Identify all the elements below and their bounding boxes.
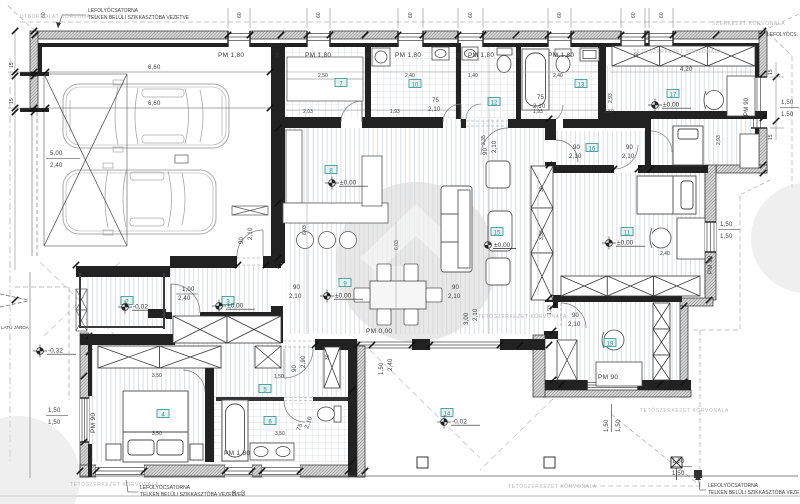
svg-text:LEFOLYÓCSATORNA: LEFOLYÓCSATORNA xyxy=(140,484,191,491)
svg-text:15: 15 xyxy=(768,69,774,75)
svg-text:12: 12 xyxy=(491,101,498,107)
svg-text:-0,32: -0,32 xyxy=(48,348,63,355)
svg-text:±0,00: ±0,00 xyxy=(340,180,357,187)
svg-text:16: 16 xyxy=(589,147,596,153)
svg-text:2,10: 2,10 xyxy=(248,227,254,240)
svg-text:90: 90 xyxy=(232,490,238,496)
svg-text:PM 90: PM 90 xyxy=(598,374,618,381)
svg-text:5,00: 5,00 xyxy=(50,151,63,157)
svg-text:17: 17 xyxy=(670,93,677,99)
svg-text:90: 90 xyxy=(573,145,581,151)
svg-text:60: 60 xyxy=(468,12,474,18)
svg-text:2,40: 2,40 xyxy=(660,251,670,257)
svg-text:90: 90 xyxy=(293,285,301,291)
svg-text:90: 90 xyxy=(626,145,634,151)
svg-text:2,10: 2,10 xyxy=(492,140,498,153)
svg-text:30: 30 xyxy=(325,354,331,360)
svg-text:PM 1,80: PM 1,80 xyxy=(548,52,574,59)
svg-text:2,10: 2,10 xyxy=(289,294,302,300)
svg-text:13: 13 xyxy=(578,83,585,89)
svg-text:2,40: 2,40 xyxy=(388,358,394,371)
svg-text:90: 90 xyxy=(452,285,460,291)
svg-text:1,50: 1,50 xyxy=(48,408,61,414)
svg-text:3,50: 3,50 xyxy=(604,109,614,115)
svg-text:6,03: 6,03 xyxy=(394,240,400,250)
svg-text:-0,02: -0,02 xyxy=(133,304,148,311)
svg-text:TETŐSZERKEZET KÖRVONALA: TETŐSZERKEZET KÖRVONALA xyxy=(478,313,567,320)
svg-text:1,00: 1,00 xyxy=(182,287,195,293)
svg-text:90: 90 xyxy=(239,236,245,244)
svg-text:TELKEN BELÜLI SZIKKASZTÓBA VEZ: TELKEN BELÜLI SZIKKASZTÓBA VEZETVE xyxy=(708,489,800,496)
svg-text:PM 90: PM 90 xyxy=(744,97,750,116)
svg-text:1,50: 1,50 xyxy=(720,222,733,228)
svg-text:PM 1,80: PM 1,80 xyxy=(468,52,494,59)
svg-text:±0,00: ±0,00 xyxy=(617,240,634,247)
svg-text:2,10: 2,10 xyxy=(569,154,582,160)
svg-text:1,50: 1,50 xyxy=(274,374,284,380)
svg-text:PM 1,80: PM 1,80 xyxy=(218,52,244,59)
svg-text:±0,00: ±0,00 xyxy=(227,303,244,310)
svg-text:1,40: 1,40 xyxy=(468,73,478,79)
svg-text:3,58: 3,58 xyxy=(539,230,545,240)
svg-text:2,40: 2,40 xyxy=(178,296,191,302)
svg-text:±0,00: ±0,00 xyxy=(494,242,511,249)
svg-text:14: 14 xyxy=(444,412,451,418)
svg-text:2,93: 2,93 xyxy=(608,93,614,103)
svg-text:SZERKEZET KÖRVONALA: SZERKEZET KÖRVONALA xyxy=(712,20,785,27)
svg-text:TETŐSZERKEZET KÖRVONALA: TETŐSZERKEZET KÖRVONALA xyxy=(508,483,597,490)
svg-text:2,40: 2,40 xyxy=(553,73,563,79)
svg-text:60: 60 xyxy=(631,12,637,18)
svg-text:6,60: 6,60 xyxy=(148,65,161,71)
svg-text:30: 30 xyxy=(539,186,545,192)
svg-text:LEFOLYÓCS.: LEFOLYÓCS. xyxy=(767,31,798,38)
svg-text:3,50: 3,50 xyxy=(152,373,162,379)
svg-text:TELKEN BELÜLI SZIKKASZTÓBA VEZ: TELKEN BELÜLI SZIKKASZTÓBA VEZETVE xyxy=(88,14,190,21)
svg-text:90: 90 xyxy=(292,364,298,372)
svg-text:75: 75 xyxy=(432,98,440,104)
svg-text:TETŐSZERKEZET KÖRVONALA: TETŐSZERKEZET KÖRVONALA xyxy=(633,48,722,55)
svg-text:2,10: 2,10 xyxy=(568,322,581,328)
svg-text:1,50: 1,50 xyxy=(672,471,685,477)
svg-text:10: 10 xyxy=(412,83,419,89)
svg-text:60: 60 xyxy=(316,12,322,18)
svg-text:1,50: 1,50 xyxy=(379,362,385,375)
svg-text:PM 1,80: PM 1,80 xyxy=(395,52,421,59)
svg-text:30: 30 xyxy=(365,52,371,58)
svg-text:2,50: 2,50 xyxy=(318,73,328,79)
svg-text:2,40: 2,40 xyxy=(405,73,415,79)
svg-text:1,50: 1,50 xyxy=(616,419,622,432)
svg-text:11: 11 xyxy=(624,231,631,237)
svg-text:PM 1,80: PM 1,80 xyxy=(305,52,331,59)
svg-text:75: 75 xyxy=(537,95,545,101)
svg-text:60: 60 xyxy=(237,12,243,18)
svg-text:PM 90: PM 90 xyxy=(90,413,97,433)
svg-text:2,40: 2,40 xyxy=(50,163,63,169)
svg-text:LEFOLYÓCSATORNA: LEFOLYÓCSATORNA xyxy=(708,482,759,489)
svg-text:1,50: 1,50 xyxy=(781,100,794,106)
svg-text:30: 30 xyxy=(634,52,640,58)
svg-text:15: 15 xyxy=(768,134,774,140)
svg-text:PM 1,80: PM 1,80 xyxy=(224,450,250,457)
svg-text:3,50: 3,50 xyxy=(275,431,285,437)
svg-text:1,93: 1,93 xyxy=(547,305,553,315)
svg-text:1,50: 1,50 xyxy=(604,419,610,432)
svg-text:90: 90 xyxy=(572,313,580,319)
svg-text:1,50: 1,50 xyxy=(720,234,733,240)
svg-text:15: 15 xyxy=(494,231,501,237)
svg-text:15: 15 xyxy=(9,98,15,104)
svg-text:-0,02: -0,02 xyxy=(452,419,467,426)
svg-text:2,10: 2,10 xyxy=(448,294,461,300)
svg-text:1,50: 1,50 xyxy=(672,459,685,465)
svg-text:TETŐSZERKEZET KÖRVONALA: TETŐSZERKEZET KÖRVONALA xyxy=(640,407,729,414)
svg-text:60: 60 xyxy=(557,12,563,18)
svg-text:2,10: 2,10 xyxy=(622,154,635,160)
svg-text:1,50: 1,50 xyxy=(781,112,794,118)
svg-text:3,00: 3,00 xyxy=(464,312,470,325)
svg-text:TELKEN BELÜLI SZIKKASZTÓBA VEZ: TELKEN BELÜLI SZIKKASZTÓBA VEZETVE xyxy=(140,491,242,498)
svg-text:2,93: 2,93 xyxy=(716,135,722,145)
svg-text:19: 19 xyxy=(607,342,614,348)
svg-text:±0,00: ±0,00 xyxy=(335,293,352,300)
svg-text:PM 0,00: PM 0,00 xyxy=(366,328,392,335)
svg-text:ÚTBURKOLAT KÖRVONALA: ÚTBURKOLAT KÖRVONALA xyxy=(20,13,98,20)
svg-text:60: 60 xyxy=(408,12,414,18)
svg-text:90: 90 xyxy=(483,147,489,155)
svg-text:30: 30 xyxy=(456,52,462,58)
svg-text:LATÚ JÁRDA: LATÚ JÁRDA xyxy=(1,324,30,330)
svg-text:15: 15 xyxy=(9,62,15,68)
svg-text:3,35: 3,35 xyxy=(481,135,487,145)
svg-text:3,50: 3,50 xyxy=(152,431,162,437)
svg-text:1,50: 1,50 xyxy=(48,420,61,426)
svg-text:PM 90: PM 90 xyxy=(708,255,714,274)
svg-text:6,60: 6,60 xyxy=(148,101,161,107)
svg-text:30: 30 xyxy=(275,52,281,58)
svg-text:LEFOLYÓCSATORNA: LEFOLYÓCSATORNA xyxy=(88,7,139,14)
svg-text:±0,00: ±0,00 xyxy=(663,102,680,109)
svg-text:60: 60 xyxy=(241,490,247,496)
svg-text:2,90: 2,90 xyxy=(301,355,307,368)
svg-text:30: 30 xyxy=(516,52,522,58)
svg-text:60: 60 xyxy=(659,12,665,18)
